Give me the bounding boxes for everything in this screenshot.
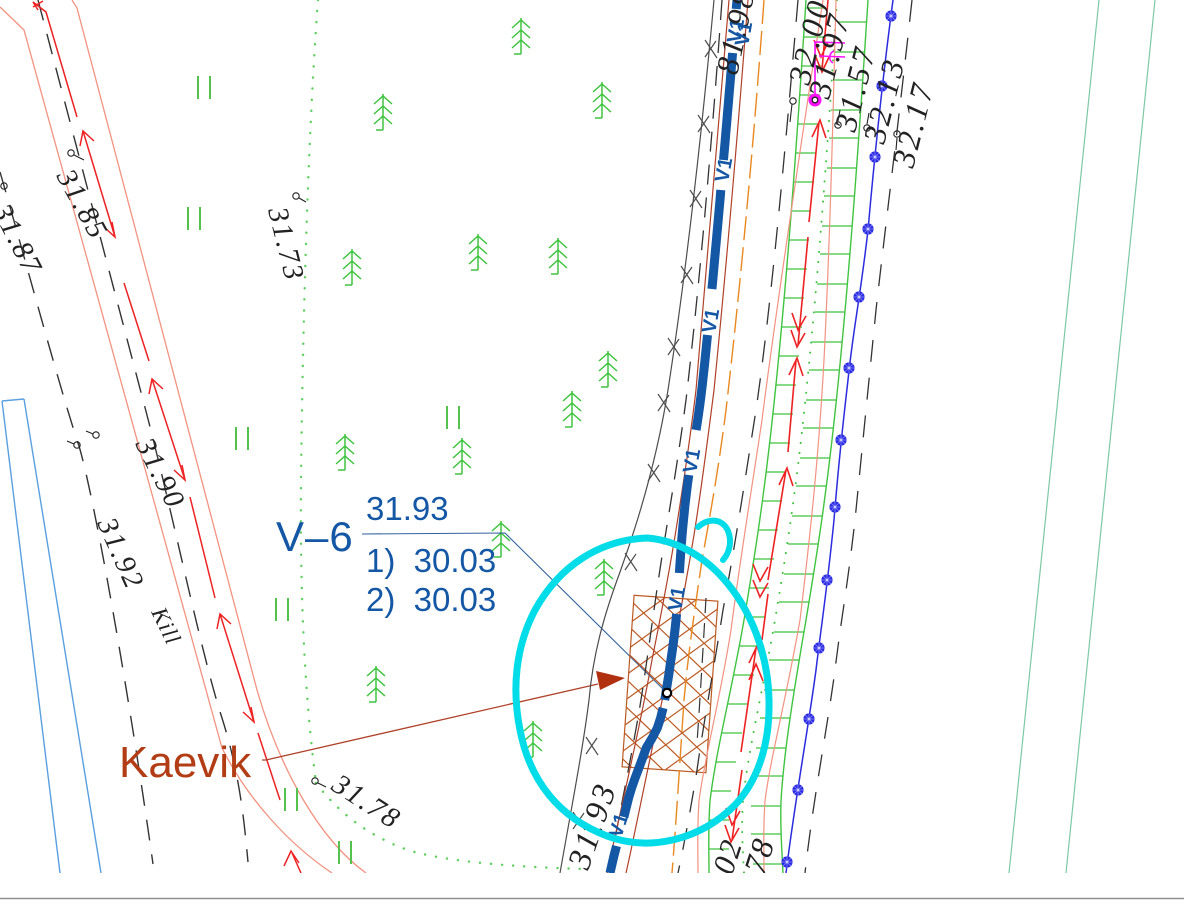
svg-text:V–6: V–6 [276,513,354,560]
svg-text:V1: V1 [664,585,690,613]
svg-text:Kaevik: Kaevik [119,738,252,787]
svg-text:V1: V1 [731,20,757,48]
svg-text:V1: V1 [679,447,705,475]
svg-text:V1: V1 [711,156,737,184]
svg-text:31.93: 31.93 [366,490,449,527]
svg-text:1) 30.03: 1) 30.03 [366,542,496,579]
svg-text:2) 30.03: 2) 30.03 [366,581,496,618]
svg-text:V1: V1 [698,307,724,335]
